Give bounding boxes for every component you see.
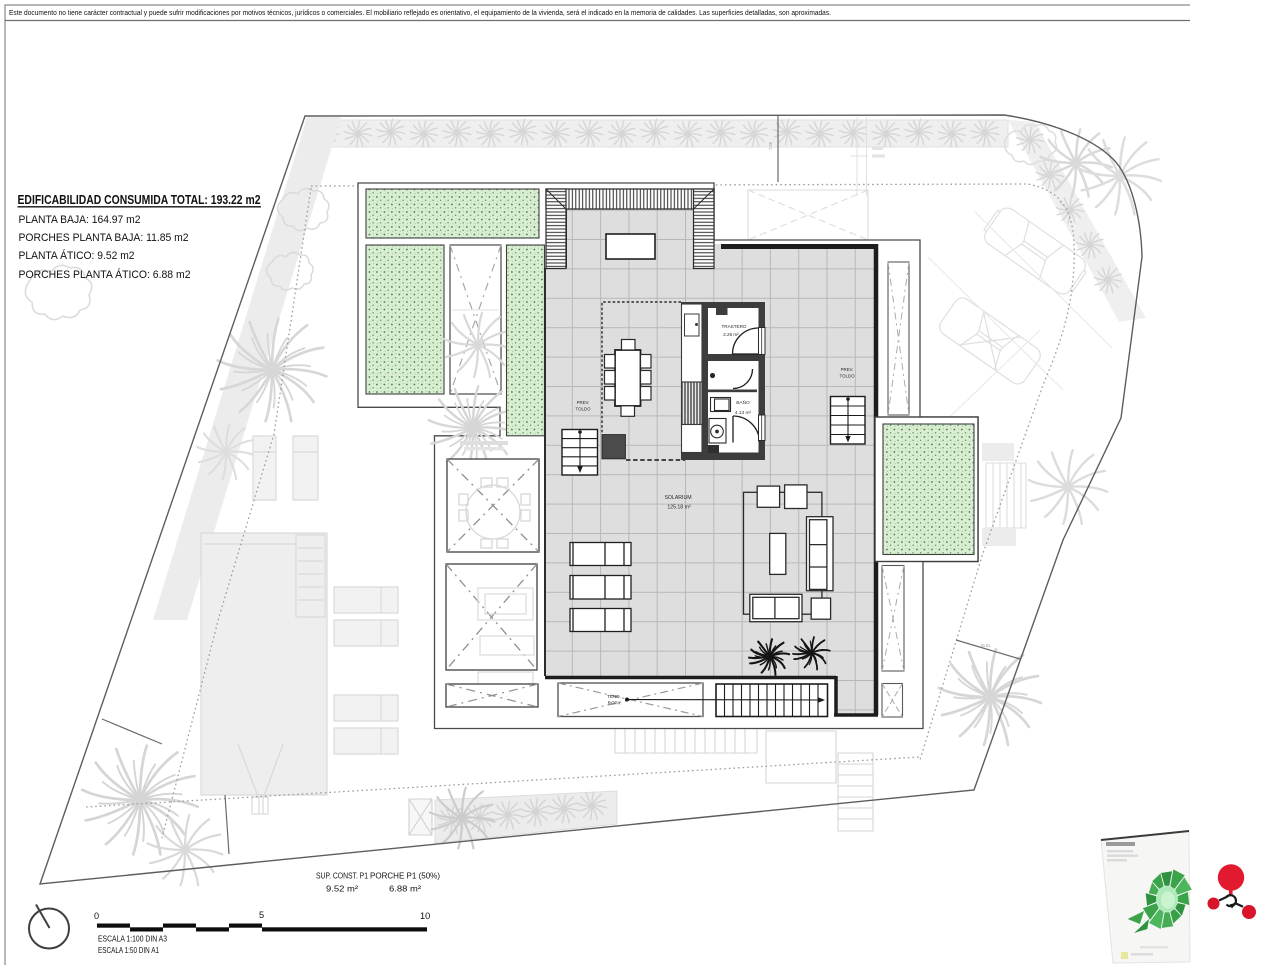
svg-text:6.88 m²: 6.88 m² — [389, 884, 421, 894]
svg-text:TEND.: TEND. — [607, 694, 621, 699]
svg-text:ESCALA 1:50 DIN A1: ESCALA 1:50 DIN A1 — [98, 945, 159, 955]
svg-text:TRASTERO: TRASTERO — [721, 324, 746, 329]
svg-text:EDIFICABILIDAD CONSUMIDA TOTAL: EDIFICABILIDAD CONSUMIDA TOTAL: 193.22 m… — [18, 193, 261, 207]
svg-text:ROPA: ROPA — [608, 701, 622, 706]
svg-text:TOLDO: TOLDO — [575, 407, 591, 412]
svg-text:0: 0 — [94, 911, 99, 921]
svg-text:Este documento no tiene caráct: Este documento no tiene carácter contrac… — [9, 8, 831, 17]
svg-text:15.81: 15.81 — [980, 643, 991, 648]
svg-text:10: 10 — [420, 911, 430, 921]
svg-text:TOLDO: TOLDO — [839, 374, 855, 379]
svg-text:PORCHE P1 (50%): PORCHE P1 (50%) — [370, 871, 440, 881]
svg-text:9.52 m²: 9.52 m² — [326, 884, 358, 894]
svg-text:PREV.: PREV. — [577, 400, 590, 405]
svg-text:PLANTA BAJA: 164.97 m2: PLANTA BAJA: 164.97 m2 — [19, 214, 141, 226]
svg-text:PORCHES PLANTA BAJA: 11.85 m2: PORCHES PLANTA BAJA: 11.85 m2 — [19, 232, 189, 244]
svg-text:4.13 m²: 4.13 m² — [735, 410, 752, 416]
svg-text:PORCHES PLANTA ÁTICO: 6.88 m2: PORCHES PLANTA ÁTICO: 6.88 m2 — [19, 268, 191, 281]
svg-text:2.26 m²: 2.26 m² — [723, 332, 739, 337]
svg-text:PREV.: PREV. — [841, 367, 854, 372]
svg-text:ESCALA 1:100 DIN A3: ESCALA 1:100 DIN A3 — [98, 934, 167, 944]
svg-text:SUP. CONST. P1: SUP. CONST. P1 — [316, 871, 368, 881]
svg-text:7.06: 7.06 — [768, 141, 773, 150]
svg-text:5: 5 — [259, 910, 264, 920]
svg-text:PLANTA ÁTICO: 9.52 m2: PLANTA ÁTICO: 9.52 m2 — [19, 249, 135, 262]
svg-text:SOLARIUM: SOLARIUM — [664, 495, 691, 501]
svg-text:125.18 m²: 125.18 m² — [667, 505, 691, 511]
svg-text:BAÑO: BAÑO — [736, 399, 750, 406]
